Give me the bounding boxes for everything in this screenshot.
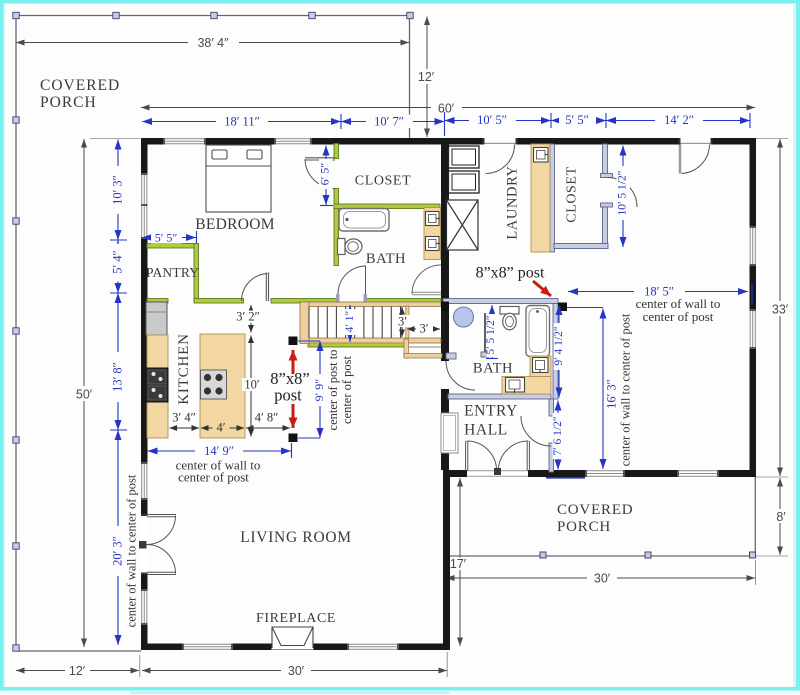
- svg-text:COVERED: COVERED: [557, 502, 633, 518]
- svg-text:center of post: center of post: [178, 470, 249, 485]
- svg-text:CLOSET: CLOSET: [355, 174, 412, 189]
- svg-text:30′: 30′: [288, 664, 305, 678]
- svg-text:3′ 4″: 3′ 4″: [172, 411, 196, 425]
- svg-text:center of post to: center of post to: [326, 350, 340, 431]
- svg-text:20′ 3″: 20′ 3″: [110, 536, 124, 566]
- svg-text:PORCH: PORCH: [40, 94, 97, 111]
- svg-text:30′: 30′: [594, 572, 611, 586]
- svg-text:3′: 3′: [420, 322, 429, 336]
- svg-text:post: post: [274, 386, 302, 405]
- svg-text:16′ 3″: 16′ 3″: [604, 379, 618, 409]
- svg-text:10′: 10′: [244, 378, 260, 392]
- svg-text:LAUNDRY: LAUNDRY: [504, 165, 520, 239]
- svg-text:3′ 2″: 3′ 2″: [236, 310, 260, 324]
- svg-text:38′ 4″: 38′ 4″: [197, 36, 229, 50]
- svg-text:9′ 4 1/2″: 9′ 4 1/2″: [553, 326, 565, 365]
- svg-text:FIREPLACE: FIREPLACE: [256, 611, 336, 626]
- svg-text:BATH: BATH: [473, 361, 513, 377]
- svg-text:center of post: center of post: [340, 355, 354, 424]
- svg-text:33′: 33′: [772, 303, 789, 317]
- svg-text:center of wall to center of po: center of wall to center of post: [618, 313, 632, 466]
- svg-text:18′ 11″: 18′ 11″: [224, 115, 260, 129]
- svg-text:LIVING ROOM: LIVING ROOM: [240, 529, 351, 546]
- svg-text:12′: 12′: [69, 664, 86, 678]
- svg-text:5′ 4″: 5′ 4″: [110, 250, 124, 274]
- svg-text:center of post: center of post: [643, 309, 714, 324]
- svg-text:PORCH: PORCH: [557, 519, 611, 535]
- svg-text:HALL: HALL: [464, 422, 508, 439]
- svg-text:8”x8” post: 8”x8” post: [476, 265, 545, 282]
- svg-text:center of wall to center of po: center of wall to center of post: [124, 474, 138, 627]
- svg-text:PANTRY: PANTRY: [146, 265, 199, 280]
- svg-text:10′ 3″: 10′ 3″: [110, 175, 124, 205]
- svg-text:BATH: BATH: [366, 251, 406, 267]
- svg-text:10′ 7″: 10′ 7″: [374, 115, 404, 129]
- svg-text:3′: 3′: [398, 315, 407, 329]
- svg-text:9′ 9″: 9′ 9″: [312, 379, 326, 402]
- svg-text:BEDROOM: BEDROOM: [195, 216, 275, 233]
- svg-text:14′ 2″: 14′ 2″: [664, 113, 694, 127]
- svg-text:4′ 8″: 4′ 8″: [255, 411, 279, 425]
- svg-text:6′ 5″: 6′ 5″: [317, 163, 331, 186]
- svg-text:5′ 5″: 5′ 5″: [565, 113, 589, 127]
- svg-text:50′: 50′: [76, 388, 93, 402]
- svg-text:CLOSET: CLOSET: [565, 166, 580, 223]
- svg-text:7′ 6 1/2″: 7′ 6 1/2″: [552, 416, 564, 455]
- svg-text:14′ 9″: 14′ 9″: [204, 444, 234, 458]
- svg-text:4′ 1″: 4′ 1″: [344, 310, 356, 332]
- svg-text:17′: 17′: [450, 557, 467, 571]
- svg-text:13′ 8″: 13′ 8″: [110, 362, 124, 392]
- svg-text:60′: 60′: [438, 102, 455, 116]
- svg-text:5′ 5 1/2″: 5′ 5 1/2″: [485, 315, 497, 354]
- svg-text:12′: 12′: [418, 70, 435, 84]
- svg-text:8′: 8′: [776, 510, 786, 524]
- svg-text:10′ 5 1/2″: 10′ 5 1/2″: [617, 170, 629, 215]
- svg-text:ENTRY: ENTRY: [464, 403, 518, 420]
- svg-text:5′ 5″: 5′ 5″: [155, 231, 178, 245]
- svg-text:10′ 5″: 10′ 5″: [477, 113, 507, 127]
- svg-text:4′: 4′: [217, 421, 226, 435]
- svg-text:KITCHEN: KITCHEN: [176, 333, 192, 404]
- svg-text:COVERED: COVERED: [40, 77, 120, 94]
